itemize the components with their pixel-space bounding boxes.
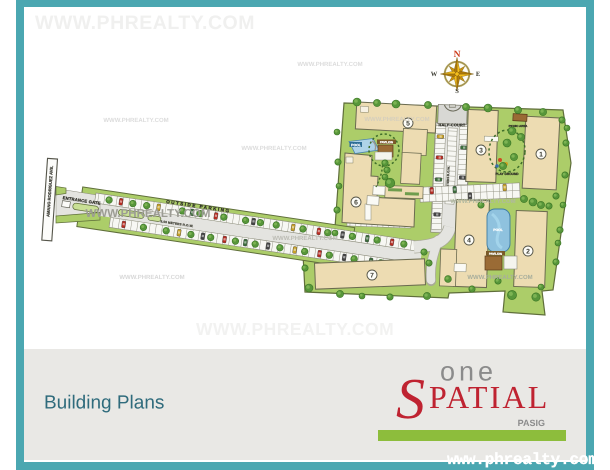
svg-text:WWW.PHREALTY.COM: WWW.PHREALTY.COM: [103, 117, 168, 124]
svg-text:2: 2: [526, 248, 530, 255]
svg-text:E: E: [476, 71, 480, 78]
svg-text:WWW.PHREALTY.COM: WWW.PHREALTY.COM: [272, 235, 337, 242]
svg-text:WWW.PHREALTY.COM: WWW.PHREALTY.COM: [364, 116, 429, 123]
svg-text:6: 6: [354, 199, 358, 206]
svg-text:S: S: [455, 88, 459, 95]
svg-text:www.phrealty.com: www.phrealty.com: [447, 451, 598, 469]
svg-text:W: W: [431, 71, 438, 78]
svg-text:PAVILION: PAVILION: [380, 140, 393, 144]
svg-text:WWW.PHREALTY.COM: WWW.PHREALTY.COM: [86, 208, 211, 220]
svg-text:WWW.PHREALTY.COM: WWW.PHREALTY.COM: [297, 61, 362, 68]
svg-text:7: 7: [370, 272, 374, 279]
svg-text:WWW.PHREALTY.COM: WWW.PHREALTY.COM: [467, 274, 532, 281]
svg-text:WWW.PHREALTY.COM: WWW.PHREALTY.COM: [35, 12, 255, 34]
svg-text:WWW.PHREALTY.COM: WWW.PHREALTY.COM: [450, 198, 515, 205]
svg-text:PATIAL: PATIAL: [429, 379, 549, 415]
svg-text:PLAY GROUND: PLAY GROUND: [495, 172, 519, 176]
svg-text:PAVILION: PAVILION: [489, 252, 502, 256]
svg-text:WWW.PHREALTY.COM: WWW.PHREALTY.COM: [196, 319, 394, 339]
svg-text:4: 4: [467, 237, 471, 244]
svg-text:HALF-COURT: HALF-COURT: [439, 123, 466, 127]
svg-text:POOL: POOL: [351, 143, 361, 147]
svg-text:3: 3: [479, 147, 483, 154]
svg-text:S: S: [396, 366, 425, 431]
svg-text:POOL: POOL: [493, 228, 503, 232]
svg-text:1: 1: [539, 151, 543, 158]
svg-text:N: N: [454, 50, 461, 60]
svg-text:PASIG: PASIG: [518, 418, 545, 428]
svg-text:WWW.PHREALTY.COM: WWW.PHREALTY.COM: [241, 145, 306, 152]
svg-text:WWW.PHREALTY.COM: WWW.PHREALTY.COM: [119, 274, 184, 281]
svg-text:Building Plans: Building Plans: [44, 393, 164, 414]
